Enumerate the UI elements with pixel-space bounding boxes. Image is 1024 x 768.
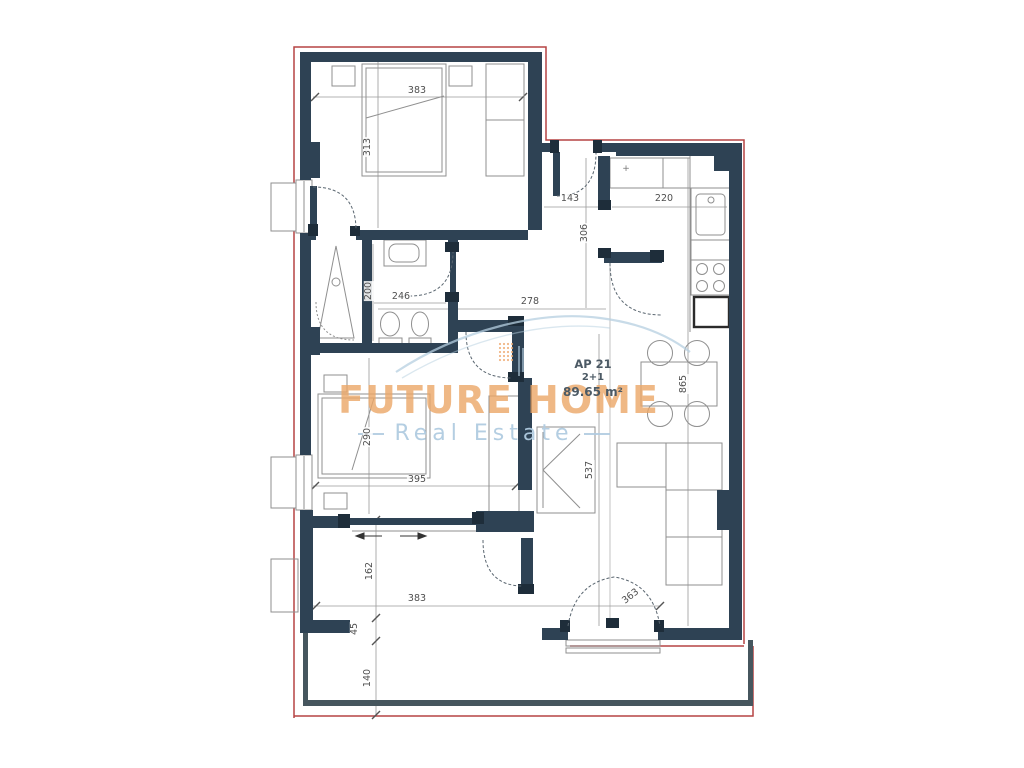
unit-id: AP 21 xyxy=(556,357,630,371)
nightstand-bottom-bedroom2 xyxy=(324,493,347,509)
wall-left-upper xyxy=(300,52,311,180)
dim-living-length: 865 xyxy=(679,374,689,394)
nightstand-right-bedroom1 xyxy=(449,66,472,86)
pillar-left-1 xyxy=(311,142,320,178)
logo-window-dots xyxy=(499,343,513,361)
wall-bedroom1-top xyxy=(300,52,542,62)
bathroom-door-arc xyxy=(409,252,453,296)
kitchen-counter xyxy=(610,156,730,332)
dim-bathroom-width: 246 xyxy=(391,292,411,302)
wall-bathroom-bottom xyxy=(310,343,458,353)
wardrobe-bedroom1 xyxy=(486,64,524,176)
bathroom-sink xyxy=(384,240,426,266)
sliding-door-arrows xyxy=(356,533,426,539)
closet-symbol xyxy=(316,246,354,340)
dim-terrace-width: 383 xyxy=(407,594,427,604)
watermark-tagline: Real Estate xyxy=(338,421,630,446)
unit-layout-type: 2+1 xyxy=(556,372,630,383)
dim-balcony-depth: 140 xyxy=(363,668,373,688)
wall-left-lower xyxy=(300,510,313,633)
fridge-icon xyxy=(694,297,729,327)
door-leaf-entry xyxy=(553,152,560,196)
wall-living-bottom-right xyxy=(658,628,730,640)
floor-plan: FUTURE HOME Real Estate AP 21 2+1 89.65 … xyxy=(0,0,1024,768)
pillar-right-wall xyxy=(717,490,729,530)
tagline-text: Real Estate xyxy=(394,421,573,446)
bedroom2-door-arc xyxy=(466,332,512,378)
balcony-wall-right xyxy=(748,640,753,706)
door-leaf-bedroom2 xyxy=(512,322,524,378)
dim-hall-depth: 306 xyxy=(580,223,590,243)
sofa xyxy=(617,443,722,585)
dim-terrace-step: 45 xyxy=(350,622,360,636)
wall-left-middle xyxy=(300,233,311,455)
door-leaf-bathroom xyxy=(450,252,456,296)
dim-bathroom-depth: 200 xyxy=(364,281,374,301)
wall-bedroom1-bottom xyxy=(356,230,528,240)
dim-entry-width: 143 xyxy=(560,194,580,204)
bedroom1-door-arc xyxy=(313,187,356,230)
dim-bedroom2-width: 395 xyxy=(407,475,427,485)
wall-terrace-stub xyxy=(300,620,350,633)
window-sill-bedroom2 xyxy=(271,457,296,508)
tagline-dash-right xyxy=(584,433,610,435)
dim-terrace-depth: 162 xyxy=(365,561,375,581)
dim-kitchen-width: 220 xyxy=(654,194,674,204)
balcony-wall-left xyxy=(303,633,308,703)
pillar-kitchen-corner xyxy=(714,153,730,171)
dim-hall-length: 278 xyxy=(520,297,540,307)
dim-bedroom2-depth: 290 xyxy=(363,427,373,447)
terrace-door-arc xyxy=(483,540,523,586)
unit-area: 89.65 m² xyxy=(556,385,630,399)
stove-icon xyxy=(691,260,730,295)
bed-bedroom1 xyxy=(362,64,446,176)
door-leaf-terrace xyxy=(521,538,533,588)
dim-living-strip: 537 xyxy=(585,460,595,480)
wall-kitchen-left xyxy=(598,156,610,206)
dim-bedroom1-width: 383 xyxy=(407,86,427,96)
entry-door-arc xyxy=(557,153,596,196)
window-sill-bedroom1 xyxy=(271,183,296,231)
unit-info: AP 21 2+1 89.65 m² xyxy=(556,357,630,399)
bidet xyxy=(409,312,431,345)
wall-right xyxy=(729,156,742,640)
kitchen-door-arc xyxy=(610,263,662,315)
wall-corner-block xyxy=(476,511,534,532)
toilet xyxy=(379,312,402,345)
door-leaf-bedroom1 xyxy=(310,186,317,230)
door-threshold xyxy=(566,640,660,653)
balcony-wall-bottom xyxy=(303,700,753,706)
watermark-logo xyxy=(396,316,690,378)
dim-bedroom1-depth: 313 xyxy=(363,137,373,157)
nightstand-left-bedroom1 xyxy=(332,66,355,86)
kitchen-marker: + xyxy=(621,165,631,175)
wall-bedroom1-right xyxy=(528,52,542,230)
sliding-door-panel xyxy=(348,518,480,525)
